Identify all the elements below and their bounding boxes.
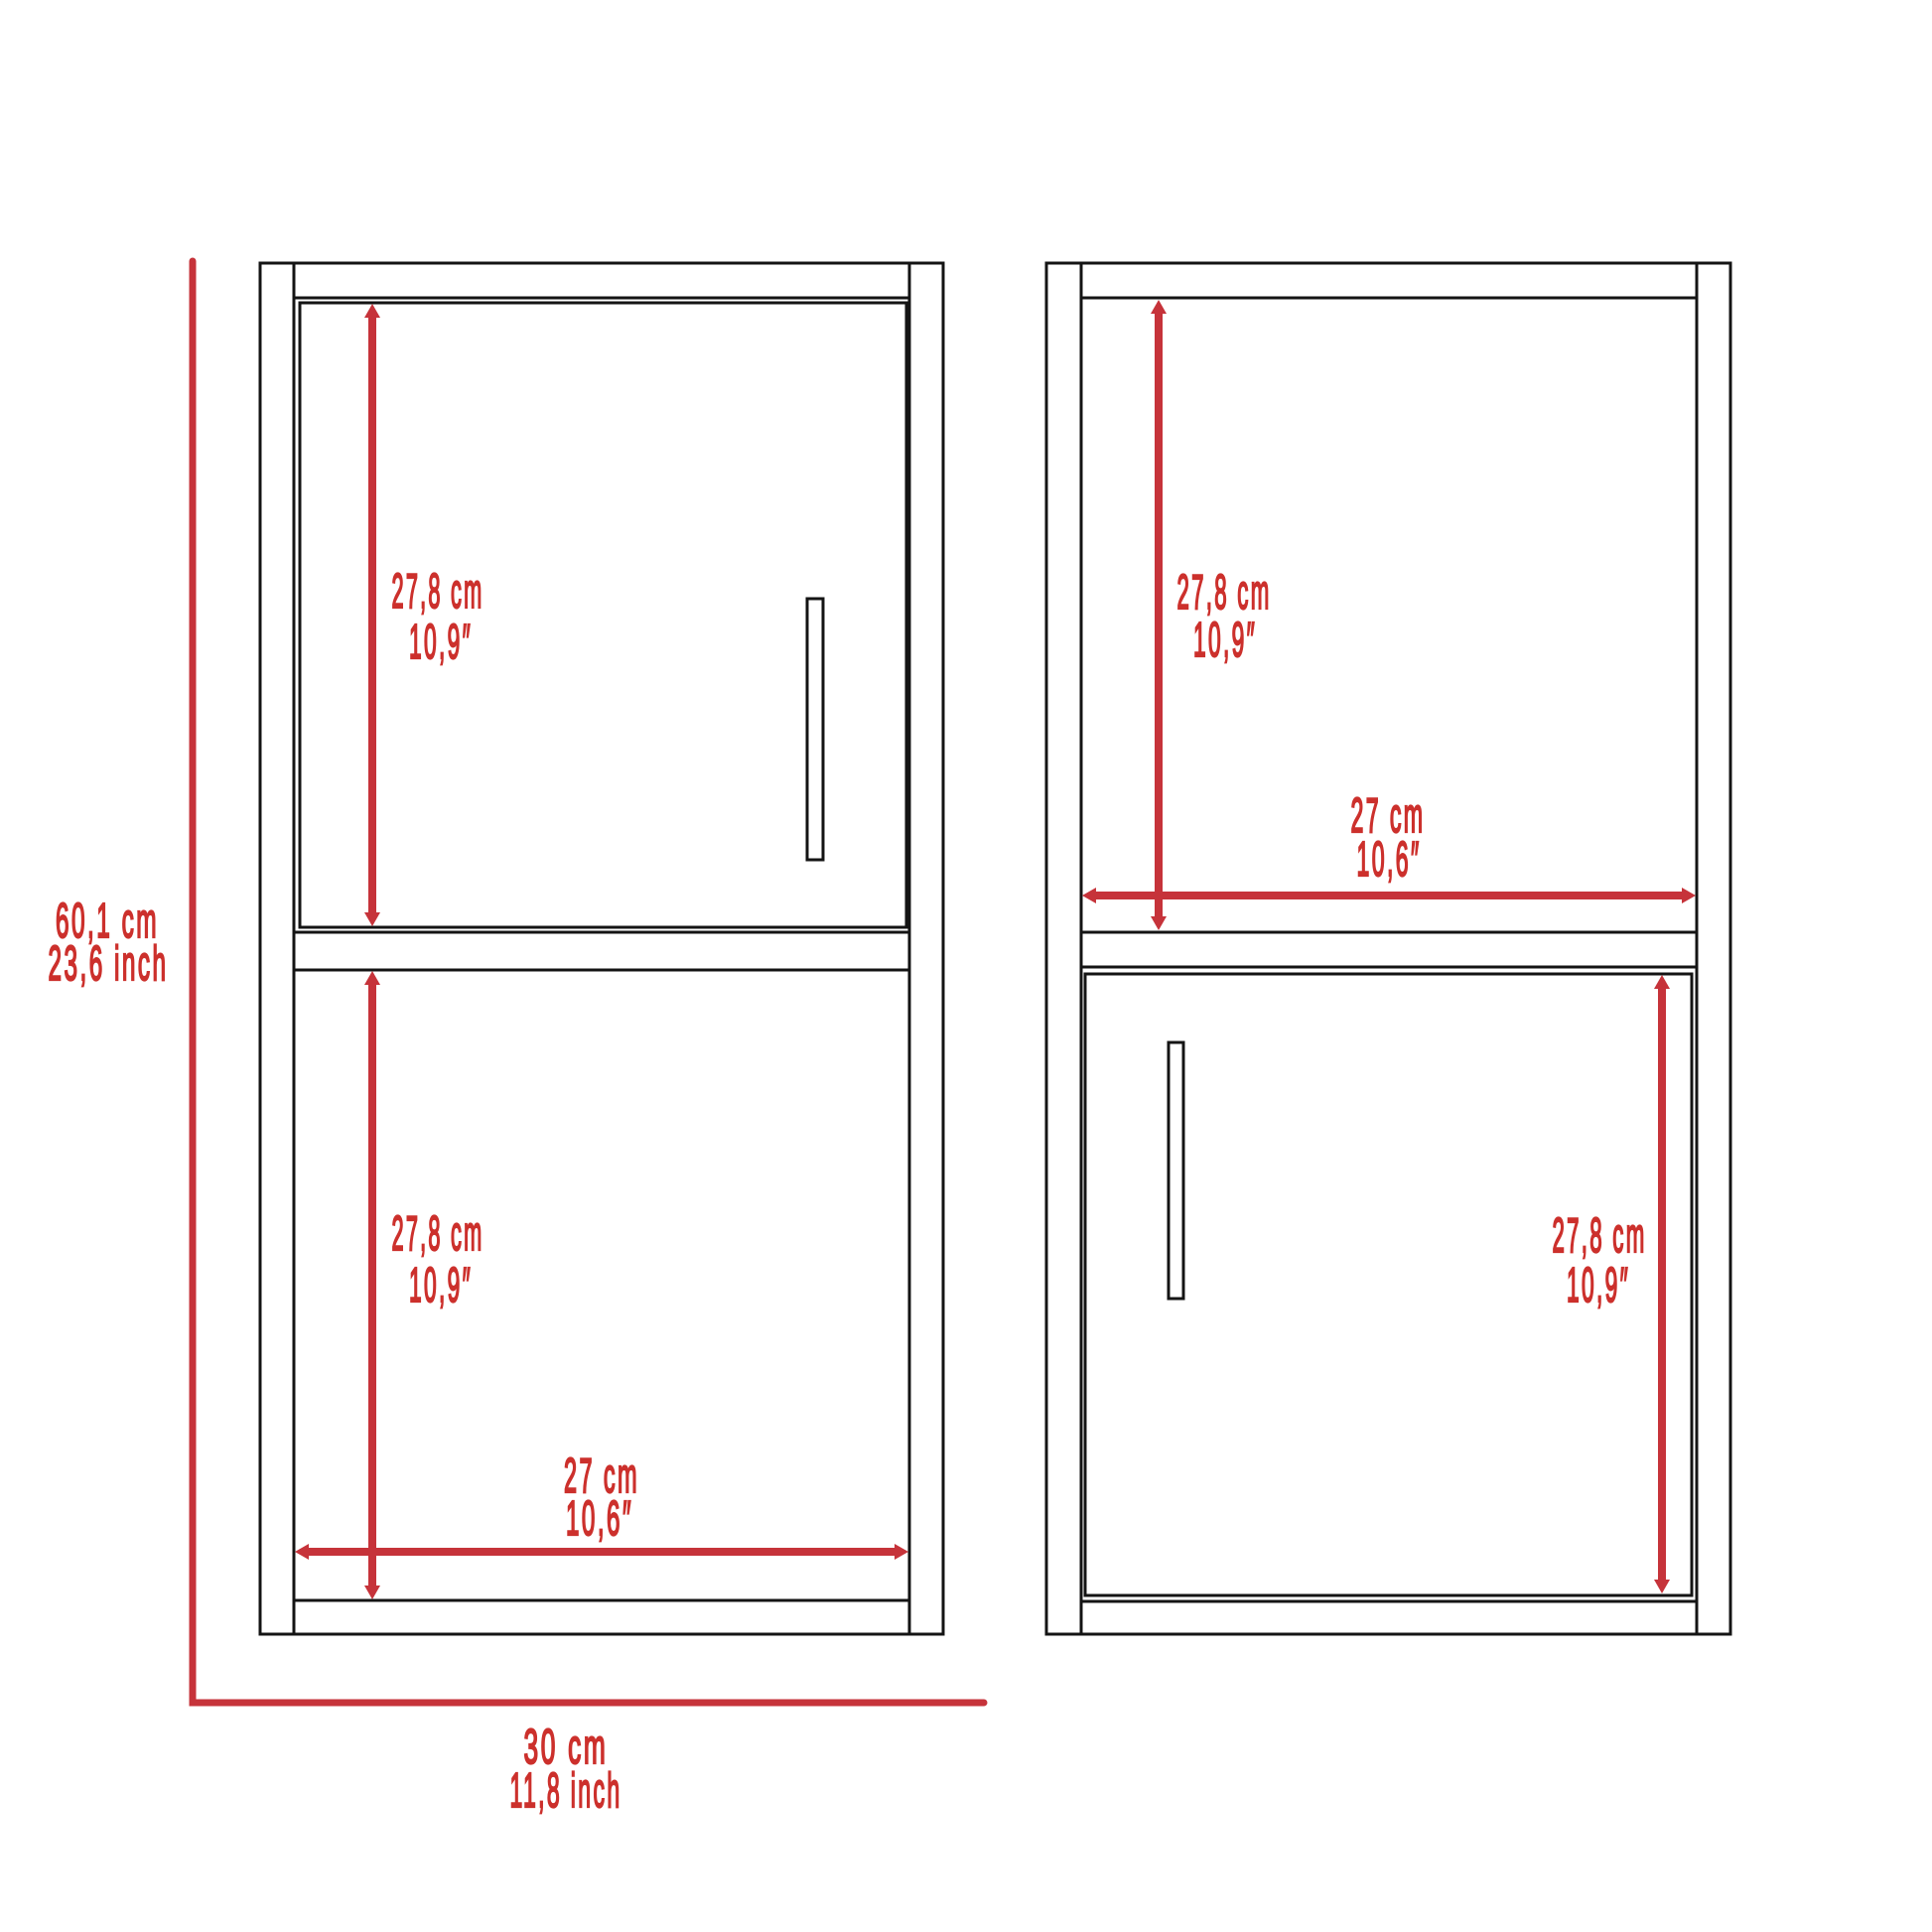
svg-text:10,6″: 10,6″ (566, 1492, 633, 1546)
svg-text:27,8 cm: 27,8 cm (392, 565, 484, 619)
svg-text:10,9″: 10,9″ (1567, 1259, 1630, 1312)
svg-text:10,6″: 10,6″ (1357, 833, 1422, 887)
svg-text:11,8 inch: 11,8 inch (510, 1764, 622, 1818)
svg-text:27,8 cm: 27,8 cm (1177, 566, 1272, 620)
svg-text:10,9″: 10,9″ (409, 616, 473, 669)
svg-text:10,9″: 10,9″ (1193, 614, 1257, 667)
svg-text:27,8 cm: 27,8 cm (392, 1207, 484, 1261)
svg-text:10,9″: 10,9″ (409, 1259, 473, 1312)
svg-text:23,6 inch: 23,6 inch (49, 937, 169, 991)
svg-text:27,8 cm: 27,8 cm (1553, 1209, 1647, 1263)
